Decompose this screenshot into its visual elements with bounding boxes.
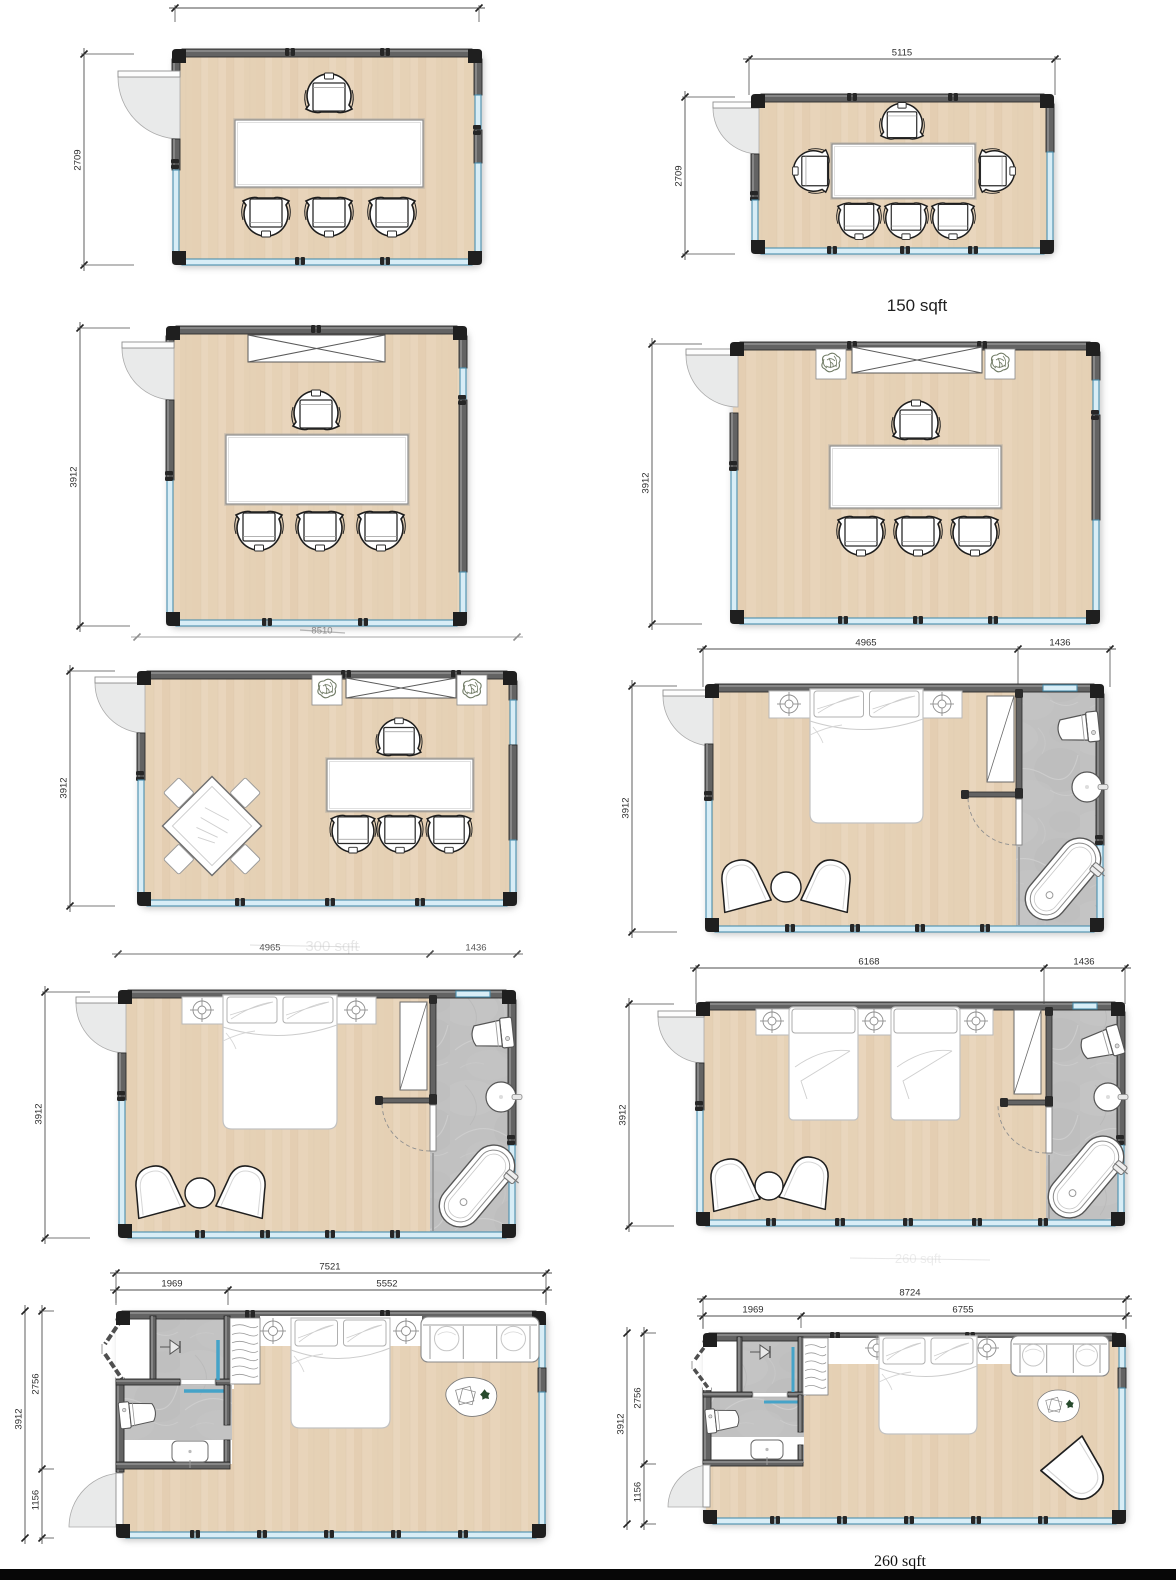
svg-text:3912: 3912 bbox=[616, 1413, 627, 1434]
svg-text:2756: 2756 bbox=[31, 1373, 42, 1394]
svg-text:5115: 5115 bbox=[892, 48, 912, 59]
svg-text:8724: 8724 bbox=[899, 1288, 920, 1299]
svg-text:5552: 5552 bbox=[376, 1279, 397, 1290]
svg-text:3912: 3912 bbox=[34, 1103, 45, 1124]
svg-text:1436: 1436 bbox=[1049, 638, 1070, 649]
svg-text:2756: 2756 bbox=[633, 1387, 644, 1408]
svg-text:3912: 3912 bbox=[14, 1408, 25, 1429]
svg-text:150 sqft: 150 sqft bbox=[887, 296, 948, 315]
svg-text:3912: 3912 bbox=[618, 1104, 629, 1125]
svg-text:260 sqft: 260 sqft bbox=[874, 1553, 927, 1570]
svg-text:3912: 3912 bbox=[621, 797, 632, 818]
svg-text:1969: 1969 bbox=[742, 1305, 763, 1316]
svg-text:1156: 1156 bbox=[633, 1482, 644, 1502]
svg-text:3912: 3912 bbox=[641, 472, 652, 493]
svg-text:1969: 1969 bbox=[161, 1279, 182, 1290]
svg-text:1436: 1436 bbox=[465, 943, 486, 954]
svg-text:6168: 6168 bbox=[858, 957, 879, 968]
svg-text:2709: 2709 bbox=[73, 149, 84, 170]
svg-text:4965: 4965 bbox=[259, 943, 280, 954]
svg-text:1156: 1156 bbox=[31, 1490, 42, 1510]
svg-text:2709: 2709 bbox=[674, 165, 685, 186]
svg-text:4965: 4965 bbox=[855, 638, 876, 649]
svg-text:6755: 6755 bbox=[952, 1305, 973, 1316]
svg-text:7521: 7521 bbox=[319, 1262, 340, 1273]
svg-text:3912: 3912 bbox=[69, 466, 80, 487]
svg-text:1436: 1436 bbox=[1073, 957, 1094, 968]
svg-text:3912: 3912 bbox=[59, 777, 70, 798]
